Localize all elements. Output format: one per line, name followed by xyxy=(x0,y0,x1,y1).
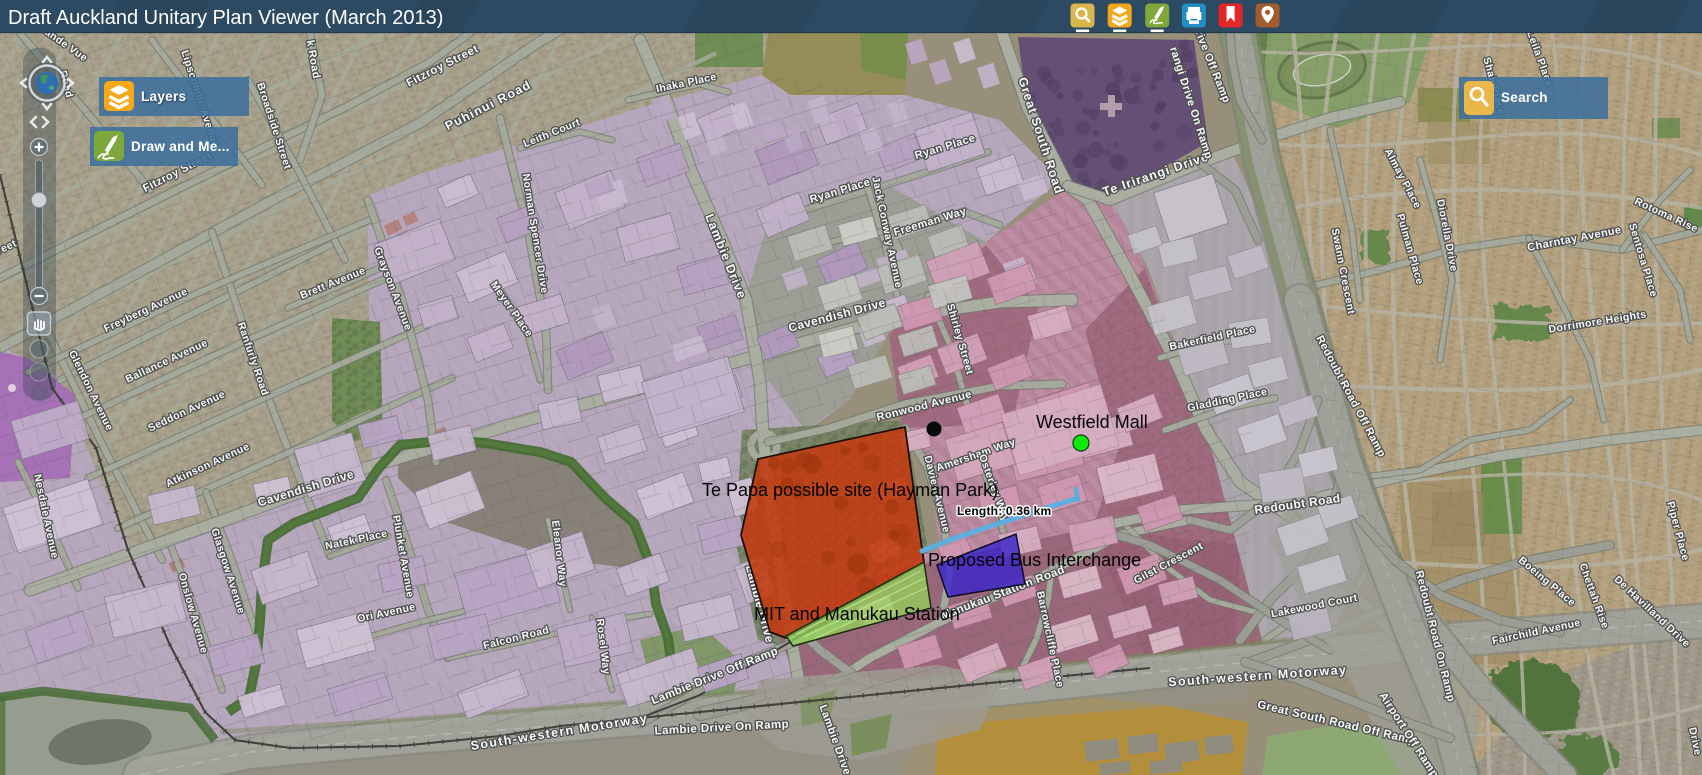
svg-text:Draft Auckland Unitary Plan Vi: Draft Auckland Unitary Plan Viewer (Marc… xyxy=(8,7,443,29)
svg-text:Search: Search xyxy=(1501,90,1548,105)
svg-text:Layers: Layers xyxy=(141,89,186,104)
svg-text:Draw and Me...: Draw and Me... xyxy=(131,139,230,154)
